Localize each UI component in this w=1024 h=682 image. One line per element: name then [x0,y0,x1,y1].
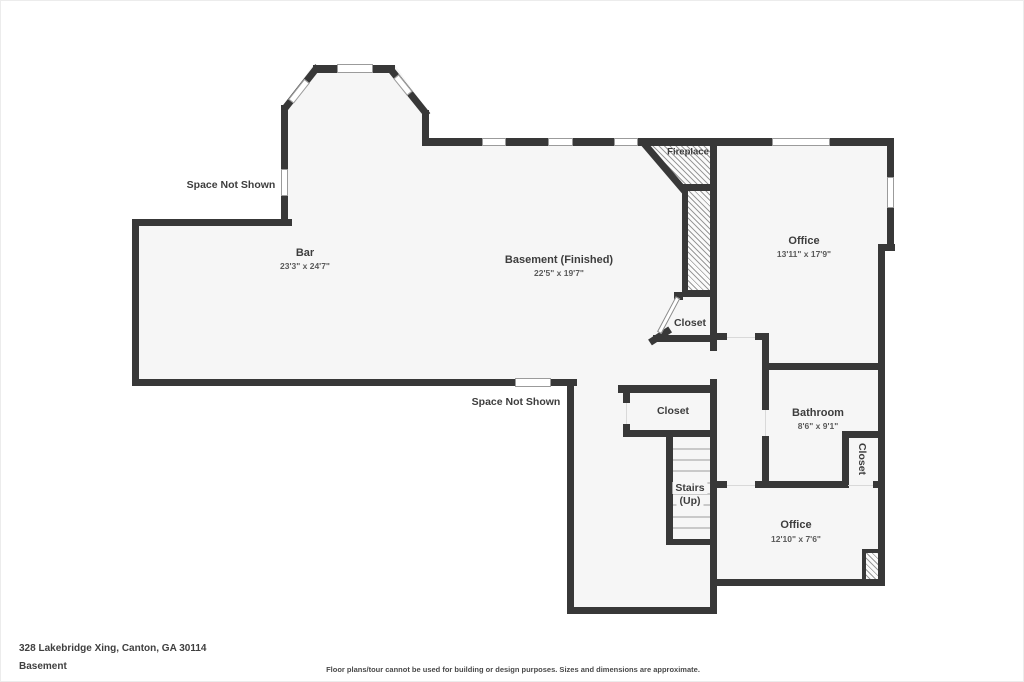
office-lower-dimensions: 12'10" x 7'6" [771,534,821,544]
stairs-label: Stairs [672,482,707,494]
floor-area-1 [132,219,292,386]
door-opening-3 [848,485,873,486]
door-opening-2 [727,485,755,486]
wall-segment-1 [132,219,139,386]
wall-segment-21 [710,579,885,586]
wall-segment-7 [710,138,717,351]
space-not-shown-upper-label: Space Not Shown [187,179,276,191]
wall-segment-2 [132,379,515,386]
bar-dimensions: 23'3" x 24'7" [280,261,330,271]
stair-tread-2 [673,470,710,472]
wall-segment-12 [422,138,482,146]
property-address: 328 Lakebridge Xing, Canton, GA 30114 [19,643,206,654]
floor-name: Basement [19,661,67,672]
window-7 [515,378,551,387]
door-opening-4 [626,403,627,424]
closet-bath-label: Closet [856,443,868,475]
wall-segment-15 [638,138,772,146]
wall-segment-36 [842,431,849,488]
stair-tread-1 [673,459,710,461]
wall-segment-8 [281,105,288,169]
wall-segment-9 [281,196,288,226]
wall-segment-27 [717,333,727,340]
wall-segment-24 [682,290,717,297]
window-6 [887,177,894,208]
window-2 [482,138,506,146]
wall-segment-20 [878,244,885,586]
wall-segment-37 [842,431,885,438]
wall-segment-39 [623,385,630,403]
basement-dimensions: 22'5" x 19'7" [534,268,584,278]
wall-segment-16 [830,138,894,146]
wall-segment-31 [762,363,769,410]
wall-segment-4 [567,379,574,614]
window-1 [281,169,288,196]
floor-plan-page: Space Not Shown Space Not Shown Bar 23'3… [0,0,1024,682]
office-upper-dimensions: 13'11" x 17'9" [777,249,831,259]
bathroom-dimensions: 8'6" x 9'1" [798,421,838,431]
stair-tread-0 [673,448,710,450]
floor-area-0 [281,65,429,386]
window-0 [337,64,373,73]
bar-label: Bar [296,247,314,259]
space-not-shown-lower-label: Space Not Shown [472,396,561,408]
window-3 [548,138,573,146]
window-5 [772,138,830,146]
stairs-direction-label: (Up) [677,495,704,507]
wall-segment-33 [710,481,727,488]
closet-upper-label: Closet [674,317,706,329]
closet-hall-label: Closet [657,405,689,417]
wall-segment-34 [755,481,848,488]
door-opening-1 [765,410,766,436]
chimney-hatch [688,191,710,291]
fireplace-label: Fireplace [667,147,709,158]
wall-segment-43 [666,539,717,545]
wall-segment-13 [506,138,548,146]
wall-segment-23 [682,191,688,297]
wall-segment-30 [762,363,884,370]
office-lower-label: Office [780,519,811,531]
wall-segment-38 [618,385,717,393]
wall-segment-35 [873,481,885,488]
basement-label: Basement (Finished) [505,254,613,266]
bathroom-label: Bathroom [792,407,844,419]
stair-tread-6 [673,516,710,518]
wall-segment-0 [132,219,292,226]
stair-tread-7 [673,527,710,529]
wall-segment-5 [567,607,717,614]
door-opening-0 [727,337,755,338]
window-4 [614,138,638,146]
disclaimer-text: Floor plans/tour cannot be used for buil… [326,665,700,674]
wall-segment-17 [887,138,894,178]
office-upper-label: Office [788,235,819,247]
wall-segment-14 [573,138,614,146]
